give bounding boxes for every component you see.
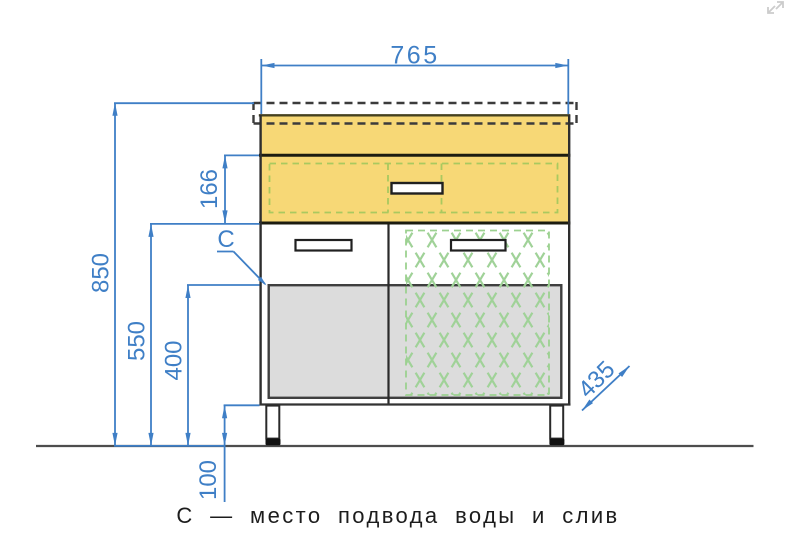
svg-text:400: 400 [161,340,188,380]
svg-text:765: 765 [390,42,439,70]
svg-text:850: 850 [88,253,115,293]
svg-text:C: C [217,226,234,253]
svg-text:166: 166 [196,169,223,209]
svg-text:435: 435 [573,356,620,403]
svg-text:550: 550 [124,321,151,361]
svg-text:С — место подвода воды и слив: С — место подвода воды и слив [176,503,619,528]
svg-text:100: 100 [195,460,222,500]
